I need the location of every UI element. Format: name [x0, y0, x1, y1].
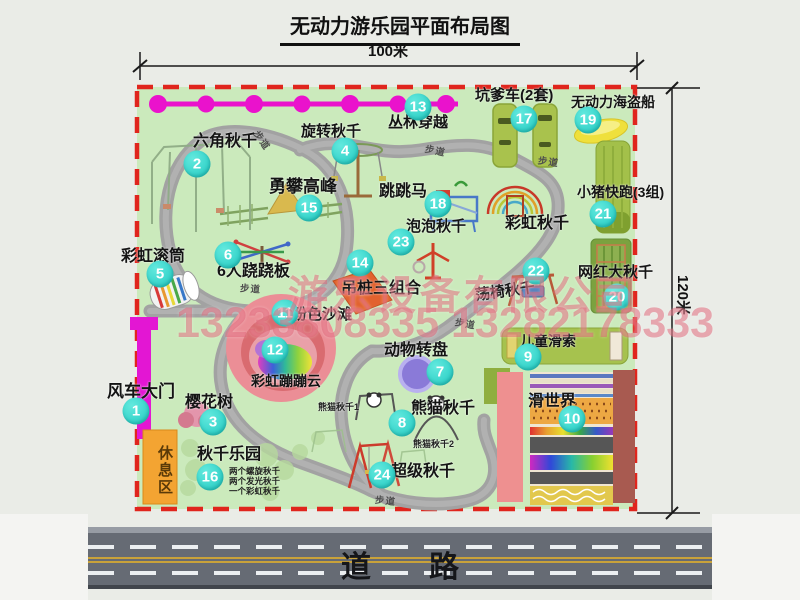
label-super-swing: 超级秋千 [391, 464, 455, 481]
left-margin [0, 514, 88, 600]
badge-16: 16 [197, 464, 224, 491]
label-rotating-swing: 旋转秋千 [301, 124, 361, 140]
badge-23: 23 [388, 229, 415, 256]
badge-8: 8 [389, 410, 416, 437]
right-margin [712, 514, 800, 600]
badge-7: 7 [427, 359, 454, 386]
width-dimension-label: 100米 [368, 40, 408, 61]
badge-14: 14 [347, 250, 374, 277]
label-peak-climbing: 勇攀高峰 [269, 178, 337, 196]
badge-20: 20 [604, 284, 631, 311]
badge-6: 6 [215, 242, 242, 269]
badge-18: 18 [425, 191, 452, 218]
label-swing-park: 秋千乐园 [197, 447, 261, 464]
swing-park-note-3: 一个彩虹秋千 [229, 486, 280, 496]
label-panda-swing: 熊猫秋千 [411, 401, 475, 418]
park-layout-page: 无动力游乐园平面布局图 100米 120米 风车大门 六角秋千 樱花树 旋转秋千… [0, 0, 800, 600]
badge-13: 13 [405, 94, 432, 121]
label-hexagon-swing: 六角秋千 [193, 134, 257, 151]
swing-park-note-2: 两个发光秋千 [229, 476, 280, 486]
badge-4: 4 [332, 138, 359, 165]
badge-12: 12 [262, 337, 289, 364]
label-panda-swing-1: 熊猫秋千1 [318, 403, 359, 412]
label-animal-turntable: 动物转盘 [384, 343, 448, 360]
badge-15: 15 [296, 195, 323, 222]
label-pit-cart: 坑爹车(2套) [475, 88, 553, 104]
badge-17: 17 [511, 106, 538, 133]
badge-19: 19 [575, 107, 602, 134]
badge-11: 11 [272, 300, 299, 327]
badge-5: 5 [147, 261, 174, 288]
label-rainbow-cloud: 彩虹蹦蹦云 [251, 374, 321, 389]
label-bubble-swing: 泡泡秋千 [406, 219, 466, 235]
road-label: 道路 [88, 542, 712, 586]
badge-1: 1 [123, 398, 150, 425]
path-label: 步道 [374, 492, 396, 508]
label-pig-run: 小猪快跑(3组) [577, 185, 664, 200]
path-label: 步道 [537, 153, 560, 170]
slide-world-icon [484, 368, 635, 505]
rest-area-label: 休息区 [147, 436, 175, 504]
badge-9: 9 [515, 344, 542, 371]
label-big-swing: 网红大秋千 [578, 265, 653, 281]
label-jump-horse: 跳跳马 [379, 184, 427, 201]
road: 道路 [88, 527, 712, 589]
badge-10: 10 [559, 406, 586, 433]
path-label: 步道 [240, 280, 262, 295]
badge-22: 22 [523, 258, 550, 285]
label-pink-beach: 粉色沙滩 [292, 307, 352, 323]
swing-park-note-1: 两个螺旋秋千 [229, 466, 280, 476]
badge-2: 2 [184, 151, 211, 178]
label-panda-swing-2: 熊猫秋千2 [413, 440, 454, 449]
badge-24: 24 [369, 462, 396, 489]
label-hanging-pile: 吊桩三组合 [341, 281, 421, 298]
height-dimension-label: 120米 [673, 275, 694, 315]
label-rainbow-swing: 彩虹秋千 [505, 216, 569, 233]
swing-park-notes: 两个螺旋秋千 两个发光秋千 一个彩虹秋千 [229, 466, 280, 496]
badge-3: 3 [200, 409, 227, 436]
badge-21: 21 [590, 201, 617, 228]
